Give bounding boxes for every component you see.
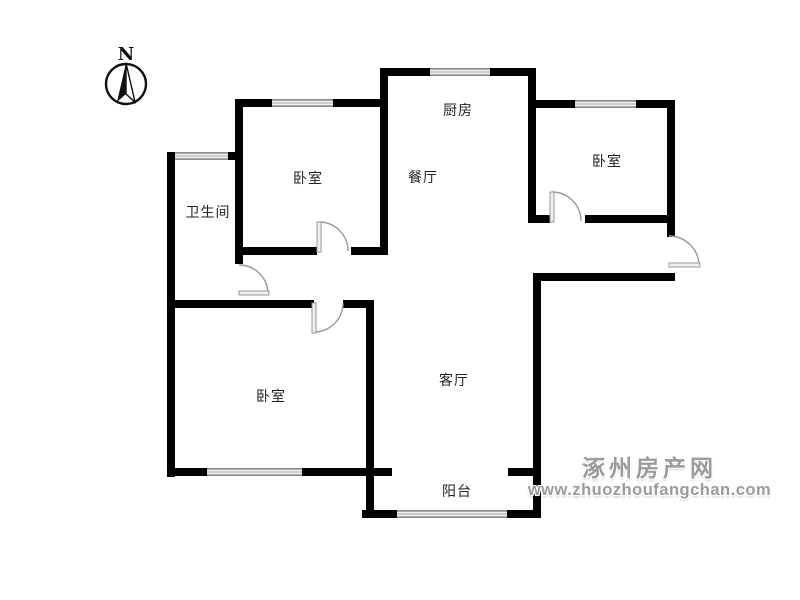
compass-needle-light <box>126 63 135 102</box>
compass-needle-dark <box>117 63 126 102</box>
room-label-living-room: 客厅 <box>439 370 469 390</box>
watermark-site-url: www.zhuozhoufangchan.com <box>522 480 777 500</box>
room-label-balcony: 阳台 <box>442 481 472 501</box>
door-entry <box>669 236 700 267</box>
door-bedroom-left <box>312 303 343 333</box>
north-compass: N <box>98 36 158 108</box>
room-label-dining: 餐厅 <box>408 167 438 187</box>
watermark-site-name: 涿州房产网 <box>522 456 777 480</box>
door-bathroom <box>239 265 269 295</box>
room-label-bedroom-top: 卧室 <box>293 168 323 188</box>
room-label-kitchen: 厨房 <box>443 100 473 120</box>
room-label-bedroom-left: 卧室 <box>256 386 286 406</box>
floor-plan: N 厨房 餐厅 卧室 卧室 卫生间 卧室 客厅 阳台 涿州房产网 www.zhu… <box>0 0 800 600</box>
door-bedroom-top <box>317 222 348 252</box>
door-bedroom-right <box>550 192 581 222</box>
compass-north-label: N <box>118 44 134 65</box>
watermark: 涿州房产网 www.zhuozhoufangchan.com <box>522 456 777 500</box>
room-label-bedroom-right: 卧室 <box>592 151 622 171</box>
room-label-bathroom: 卫生间 <box>186 202 231 222</box>
